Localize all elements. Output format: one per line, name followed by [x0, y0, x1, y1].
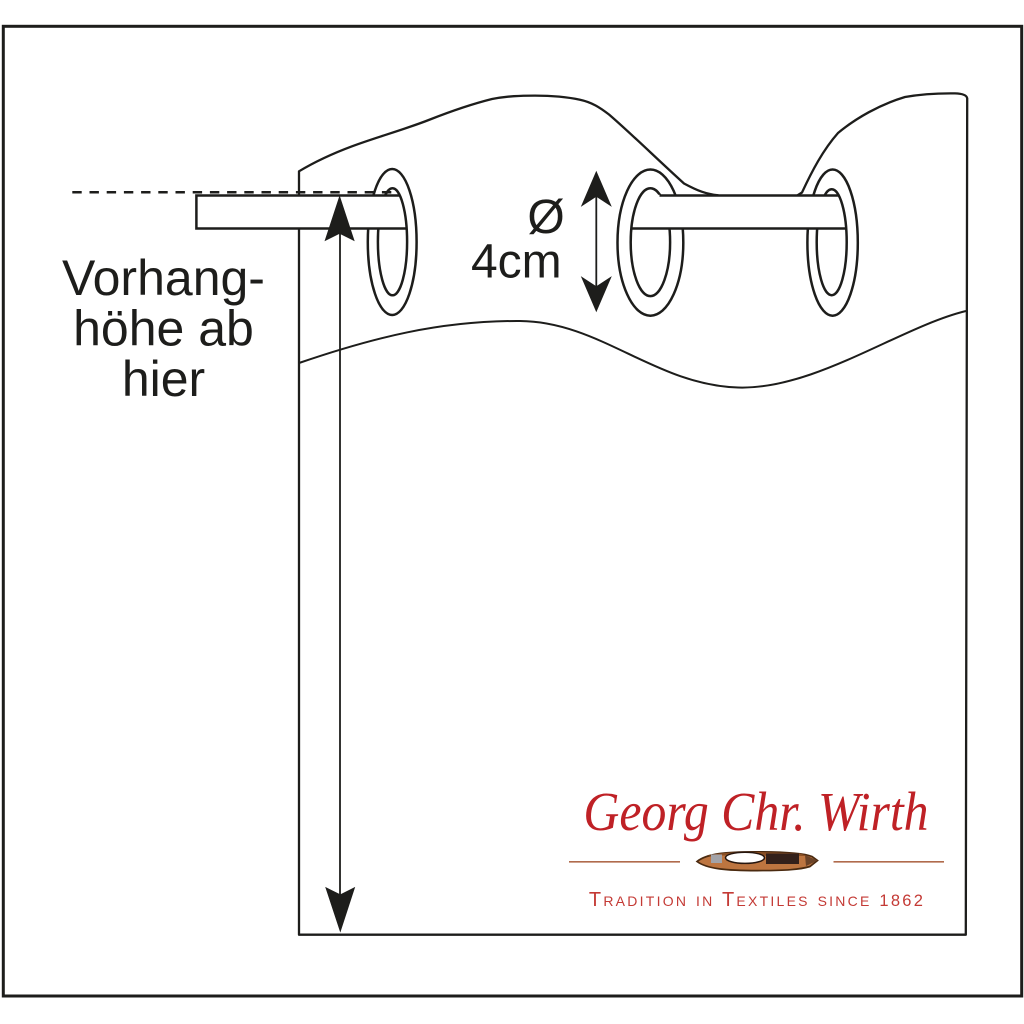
- svg-text:Georg Chr. Wirth: Georg Chr. Wirth: [583, 782, 928, 843]
- svg-text:Tradition in Textiles since 18: Tradition in Textiles since 1862: [589, 889, 925, 911]
- svg-text:hier: hier: [122, 351, 205, 407]
- svg-text:Vorhang-: Vorhang-: [62, 250, 265, 306]
- svg-text:höhe ab: höhe ab: [73, 301, 254, 357]
- svg-text:4cm: 4cm: [471, 235, 562, 288]
